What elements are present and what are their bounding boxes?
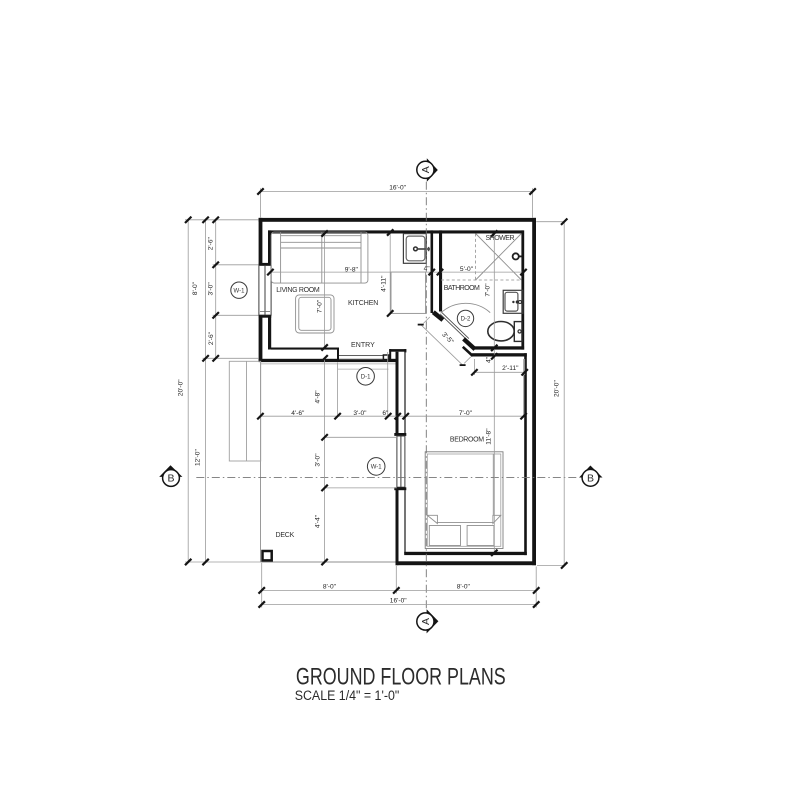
svg-text:A: A: [420, 618, 432, 625]
svg-text:6": 6": [382, 410, 389, 417]
svg-text:BEDROOM: BEDROOM: [450, 437, 484, 444]
svg-text:2'-11": 2'-11": [502, 365, 519, 372]
svg-text:16'-0": 16'-0": [390, 597, 407, 604]
svg-text:20'-0": 20'-0": [178, 379, 185, 396]
svg-text:ENTRY: ENTRY: [351, 342, 375, 349]
svg-text:8'-0": 8'-0": [323, 583, 337, 590]
svg-text:2'-6": 2'-6": [207, 236, 214, 250]
svg-text:3'-0": 3'-0": [353, 410, 367, 417]
svg-text:4'-4": 4'-4": [315, 514, 322, 528]
svg-text:4'-8": 4'-8": [315, 390, 322, 404]
svg-text:2'-6": 2'-6": [208, 331, 215, 345]
svg-text:4": 4": [486, 356, 493, 363]
svg-text:3'-0": 3'-0": [315, 453, 322, 467]
svg-text:4'-11": 4'-11": [380, 275, 387, 292]
svg-text:SCALE 1/4" = 1'-0": SCALE 1/4" = 1'-0": [295, 687, 400, 703]
svg-text:GROUND FLOOR PLANS: GROUND FLOOR PLANS: [296, 663, 506, 690]
svg-text:A: A: [420, 166, 432, 173]
svg-text:KITCHEN: KITCHEN: [348, 300, 378, 307]
svg-text:11'-8": 11'-8": [486, 428, 493, 445]
svg-text:B: B: [587, 472, 594, 484]
svg-text:D-1: D-1: [361, 375, 371, 381]
svg-text:7'-0": 7'-0": [459, 410, 473, 417]
svg-text:7'-0": 7'-0": [485, 283, 492, 297]
svg-text:8'-0": 8'-0": [457, 583, 471, 590]
svg-text:4": 4": [424, 265, 431, 272]
svg-text:B: B: [167, 473, 174, 485]
svg-text:9'-8": 9'-8": [345, 266, 359, 273]
svg-text:5'-0": 5'-0": [460, 266, 474, 273]
svg-text:DECK: DECK: [276, 532, 295, 539]
svg-text:W-1: W-1: [371, 465, 383, 471]
svg-text:20'-0": 20'-0": [554, 380, 561, 397]
svg-text:W-1: W-1: [234, 288, 246, 294]
svg-text:LIVING ROOM: LIVING ROOM: [276, 287, 320, 294]
svg-text:SHOWER: SHOWER: [486, 235, 515, 242]
svg-text:3'-0": 3'-0": [207, 282, 214, 296]
svg-text:16'-0": 16'-0": [389, 184, 406, 191]
svg-text:8'-0": 8'-0": [192, 281, 199, 295]
svg-text:BATHROOM: BATHROOM: [444, 285, 480, 292]
svg-text:12'-0": 12'-0": [195, 449, 202, 466]
svg-text:7'-0": 7'-0": [316, 299, 323, 313]
svg-text:D-2: D-2: [461, 317, 471, 323]
svg-text:4'-6": 4'-6": [291, 410, 305, 417]
